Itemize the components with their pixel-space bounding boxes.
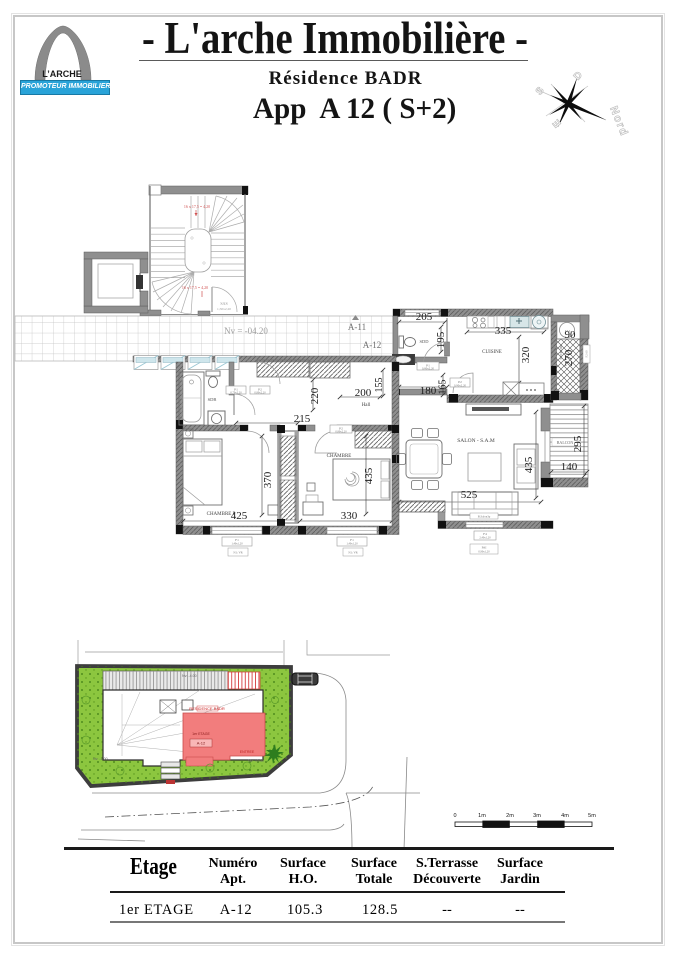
- svg-text:205: 205: [416, 311, 433, 323]
- svg-text:220: 220: [309, 387, 321, 404]
- svg-text:2,40x1,20: 2,40x1,20: [479, 537, 491, 540]
- svg-text:Nv: -4.00: Nv: -4.00: [182, 674, 197, 678]
- svg-text:B.Salon3p: B.Salon3p: [478, 515, 491, 519]
- svg-text:425: 425: [231, 510, 248, 522]
- svg-text:A-11: A-11: [348, 322, 366, 332]
- svg-text:335: 335: [495, 325, 512, 337]
- svg-text:1m: 1m: [478, 813, 486, 819]
- svg-text:PAI: PAI: [482, 546, 487, 550]
- svg-text:2m: 2m: [506, 813, 514, 819]
- svg-text:0,90x2,20: 0,90x2,20: [454, 384, 467, 389]
- svg-text:1er ETAGE: 1er ETAGE: [192, 732, 210, 736]
- svg-text:Hall: Hall: [362, 403, 371, 408]
- svg-text:1,40x1,20: 1,40x1,20: [231, 543, 243, 546]
- svg-text:435: 435: [363, 467, 375, 484]
- svg-text:3m: 3m: [533, 813, 541, 819]
- svg-text:525: 525: [461, 489, 478, 501]
- svg-text:165: 165: [438, 380, 449, 395]
- svg-text:270: 270: [563, 349, 575, 366]
- svg-text:SAS: SAS: [220, 301, 227, 306]
- svg-text:330: 330: [341, 510, 358, 522]
- svg-text:0,80x2,20: 0,80x2,20: [254, 392, 266, 395]
- svg-text:16 x 17,5 = 4,20: 16 x 17,5 = 4,20: [184, 204, 210, 210]
- svg-text:1,40x1,20: 1,40x1,20: [346, 543, 358, 546]
- svg-text:5m: 5m: [588, 813, 596, 819]
- svg-text:ENTREE: ENTREE: [240, 750, 255, 754]
- svg-text:RESIDENCE BADR: RESIDENCE BADR: [189, 706, 225, 711]
- svg-text:16 x 17,5 = 4,20: 16 x 17,5 = 4,20: [182, 285, 208, 291]
- svg-text:200: 200: [355, 387, 372, 399]
- svg-text:0,90x1,20: 0,90x1,20: [478, 551, 490, 554]
- svg-text:4m: 4m: [561, 813, 569, 819]
- svg-text:320: 320: [520, 346, 532, 363]
- svg-text:0,80x2,20: 0,80x2,20: [335, 431, 347, 434]
- svg-text:0: 0: [453, 813, 456, 819]
- svg-text:140: 140: [561, 461, 578, 473]
- svg-text:180: 180: [420, 385, 437, 397]
- svg-text:SECHOIR: SECHOIR: [559, 344, 563, 360]
- svg-text:A-12: A-12: [363, 340, 382, 350]
- svg-text:215: 215: [294, 413, 311, 425]
- svg-text:BALCON: BALCON: [557, 440, 574, 445]
- svg-text:1,50x2,20: 1,50x2,20: [217, 307, 231, 312]
- svg-text:370: 370: [262, 471, 274, 488]
- svg-text:N1: VR: N1: VR: [348, 551, 357, 555]
- svg-text:N1: VR: N1: VR: [233, 551, 242, 555]
- svg-text:F4: F4: [483, 532, 487, 536]
- svg-text:SALON - S.A.M: SALON - S.A.M: [457, 438, 495, 444]
- svg-text:0,70x2,20: 0,70x2,20: [230, 392, 242, 395]
- svg-text:155: 155: [374, 378, 385, 393]
- svg-text:CUISINE: CUISINE: [482, 350, 502, 355]
- svg-text:F1: F1: [350, 538, 354, 542]
- svg-text:Nv: -1.00: Nv: -1.00: [93, 757, 108, 761]
- svg-text:A-12: A-12: [197, 741, 206, 746]
- svg-text:CHAMBRE: CHAMBRE: [327, 454, 352, 459]
- svg-text:F1: F1: [235, 538, 239, 542]
- svg-text:F2 60: F2 60: [585, 350, 589, 357]
- svg-text:SDB: SDB: [208, 397, 217, 402]
- svg-text:SDD: SDD: [419, 339, 429, 344]
- svg-text:Nv = -04.20: Nv = -04.20: [224, 326, 268, 336]
- svg-text:0,80x2,20: 0,80x2,20: [422, 367, 435, 372]
- svg-text:295: 295: [572, 435, 584, 452]
- svg-text:Nv: +0.00: Nv: +0.00: [248, 759, 263, 763]
- svg-text:435: 435: [523, 456, 535, 473]
